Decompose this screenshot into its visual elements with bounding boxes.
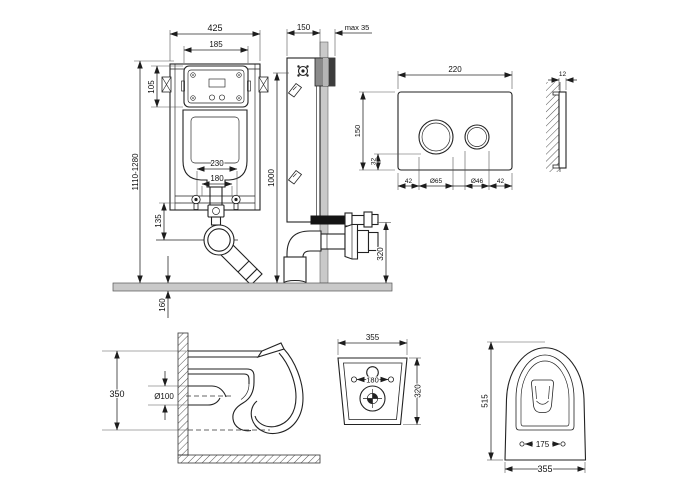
dim-top-width: 355 — [537, 464, 552, 474]
bolt-hole-left — [351, 377, 356, 382]
dim-bolt-spacing: 180 — [210, 174, 224, 183]
dim-plate-height: 150 — [353, 125, 362, 138]
toilet-side-view: 350 Ø100 — [102, 333, 320, 463]
flush-button-large — [419, 120, 453, 154]
floor-line — [113, 283, 392, 291]
seat-hole-left — [520, 442, 524, 446]
wall-anchor-left — [162, 77, 171, 92]
dim-outlet-offset: 135 — [154, 214, 163, 228]
dim-panel-height: 1000 — [267, 169, 276, 187]
plate-profile — [559, 92, 566, 168]
flush-plate-side-view: 12 — [546, 71, 577, 172]
flush-plate-front-view: 220 150 32 42 Ø65 Ø46 42 — [353, 65, 512, 190]
dim-frame-depth: 150 — [297, 23, 311, 32]
inspection-panel — [315, 58, 335, 86]
dim-install-height: 1110-1280 — [131, 153, 140, 191]
dim-button-offset: 32 — [371, 158, 378, 166]
drain-opening — [532, 380, 554, 413]
dim-back-height: 320 — [414, 384, 423, 398]
dim-finish-thickness: max 35 — [345, 23, 370, 32]
frame-side-view — [284, 42, 378, 286]
dim-button-large: Ø65 — [430, 178, 443, 185]
dim-plate-width: 220 — [448, 65, 462, 74]
bowl-profile — [188, 343, 303, 434]
seat-hole-right — [561, 442, 565, 446]
technical-drawing-sheet: 425 185 105 1110-1280 230 180 135 160 15… — [0, 0, 700, 500]
floor-section — [178, 455, 320, 463]
dim-seat-hole-spacing: 175 — [536, 440, 550, 449]
dim-frame-width: 425 — [207, 23, 222, 33]
dim-margin-right: 42 — [497, 178, 505, 185]
dim-back-bolt-spacing: 180 — [366, 376, 379, 385]
dim-bend-width: 230 — [210, 159, 224, 168]
dim-button-small: Ø46 — [471, 178, 484, 185]
dim-access-width: 185 — [209, 40, 223, 49]
toilet-top-view: 175 515 355 — [481, 342, 586, 474]
dim-plate-thickness: 12 — [559, 71, 567, 78]
drain-elbow-pipe — [284, 225, 378, 286]
flush-button-small — [465, 125, 489, 149]
outlet-hole — [360, 386, 385, 411]
dim-back-width: 355 — [366, 333, 380, 342]
outlet-elbow — [204, 225, 262, 285]
dim-bowl-height: 350 — [109, 389, 124, 399]
flush-plate — [398, 92, 512, 170]
flush-actuator-icon — [297, 65, 308, 76]
dim-margin-left: 42 — [405, 178, 413, 185]
access-box — [182, 66, 251, 107]
wall-anchor-right — [259, 77, 268, 92]
dim-top-depth: 515 — [481, 394, 490, 408]
dim-below-floor: 160 — [158, 298, 167, 312]
wall-hatch — [546, 82, 560, 172]
dim-outlet-height: 320 — [376, 247, 385, 261]
dim-drain-diameter: Ø100 — [154, 392, 174, 401]
installation-drawing: 425 185 105 1110-1280 230 180 135 160 15… — [0, 0, 700, 500]
bolt-hole-right — [388, 377, 393, 382]
dim-access-height: 105 — [147, 80, 156, 94]
toilet-back-view: 180 355 320 — [338, 333, 423, 425]
